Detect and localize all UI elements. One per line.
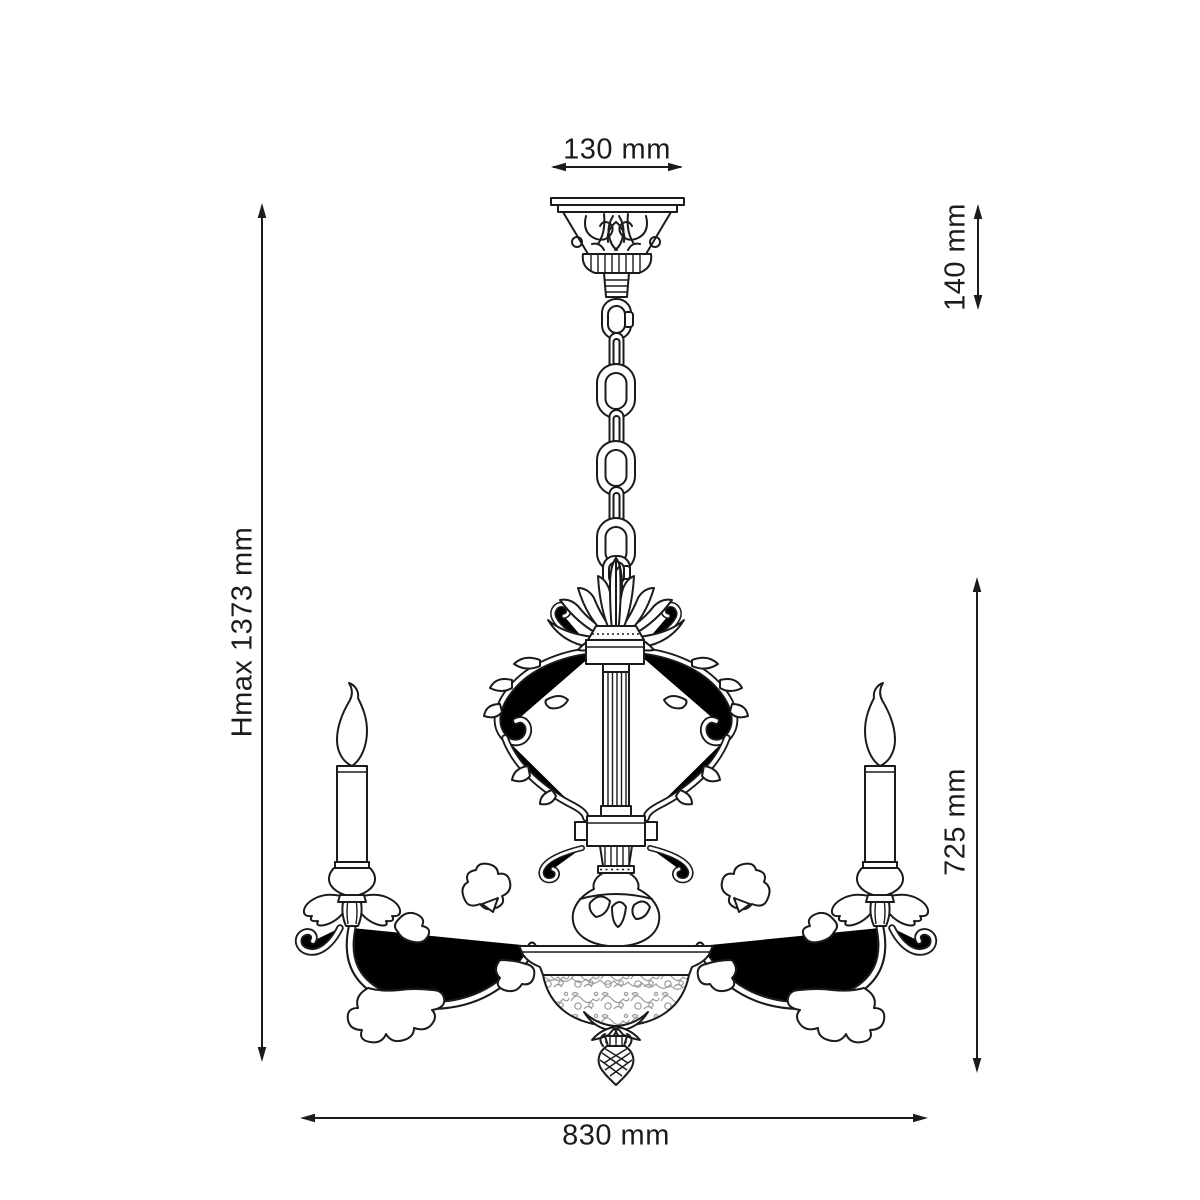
ceiling-canopy xyxy=(551,198,684,297)
glass-bowl xyxy=(519,946,713,1026)
dim-label-suspension-height: 140 mm xyxy=(940,203,973,311)
suspension-chain xyxy=(597,299,635,590)
left-candle-arm xyxy=(299,683,535,1042)
right-candle-arm xyxy=(698,683,934,1042)
dim-label-max-height: Hmax 1373 mm xyxy=(227,527,260,738)
dim-line-suspension-height xyxy=(974,204,983,310)
baluster-vase xyxy=(573,846,660,946)
central-column xyxy=(586,640,645,846)
technical-drawing-page: 130 mm 140 mm Hmax 1373 mm 725 mm 830 mm xyxy=(0,0,1200,1200)
chandelier-line-art xyxy=(0,0,1200,1200)
crown-leaf-spray xyxy=(548,558,684,651)
dim-label-total-width: 830 mm xyxy=(562,1120,670,1153)
dim-line-body-height xyxy=(973,577,982,1073)
dim-label-body-height: 725 mm xyxy=(940,768,973,876)
dim-label-canopy-width: 130 mm xyxy=(563,134,671,167)
